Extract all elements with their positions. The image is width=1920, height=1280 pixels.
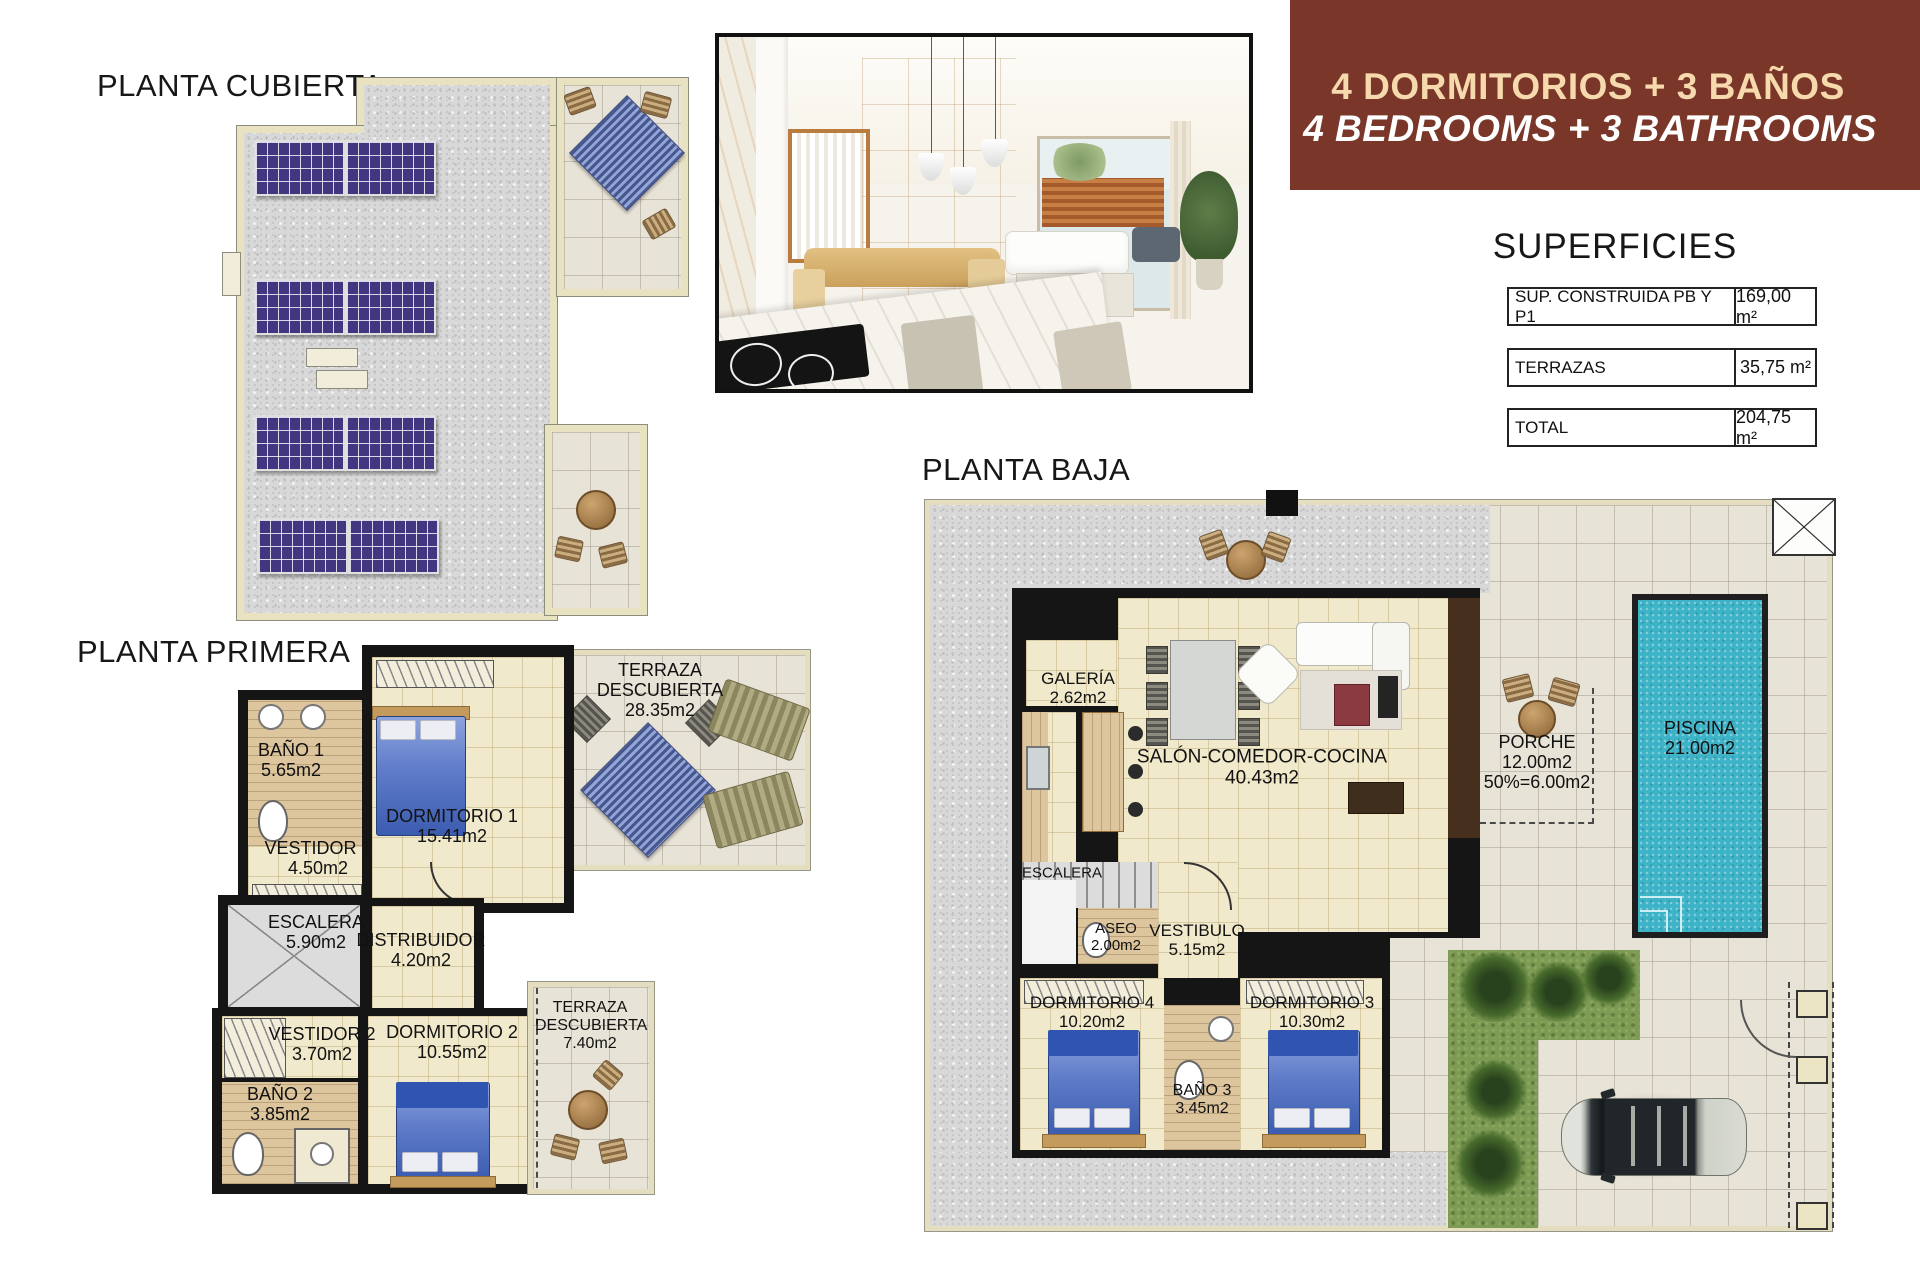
pillow <box>420 720 456 740</box>
duvet <box>396 1082 488 1108</box>
stool-icon <box>1128 802 1143 817</box>
room-label-piscina: PISCINA21.00m2 <box>1645 718 1755 758</box>
pillow <box>1274 1108 1310 1128</box>
room-label-escalera-baja: ESCALERA <box>1007 866 1117 883</box>
solar-panel <box>257 518 348 574</box>
photo-outdoor-greenery <box>1048 143 1112 182</box>
superficies-row-value: 169,00 m² <box>1736 289 1815 324</box>
chair-icon <box>1146 718 1168 746</box>
superficies-row: SUP. CONSTRUIDA PB Y P1 169,00 m² <box>1507 287 1817 326</box>
sink-icon <box>300 704 326 730</box>
crossed-box-icon <box>1772 498 1836 556</box>
pillow <box>1054 1108 1090 1128</box>
stair-landing <box>1022 880 1076 964</box>
superficies-title: SUPERFICIES <box>1455 227 1775 267</box>
table-icon <box>568 1090 608 1130</box>
room-label-porche: PORCHE12.00m250%=6.00m2 <box>1467 732 1607 792</box>
room-label-dormitorio3: DORMITORIO 310.30m2 <box>1237 993 1387 1031</box>
toilet-icon <box>232 1132 264 1176</box>
photo-stool <box>1053 321 1132 393</box>
wardrobe-icon <box>376 660 494 688</box>
bed-headboard <box>1042 1134 1146 1148</box>
superficies-row-value: 204,75 m² <box>1736 410 1815 445</box>
bed-headboard <box>1262 1134 1366 1148</box>
gravel-left <box>930 505 1018 1226</box>
chair-icon <box>1146 682 1168 710</box>
room-label-dormitorio4: DORMITORIO 410.20m2 <box>1017 993 1167 1031</box>
roof-left-bump <box>222 252 241 296</box>
pillow <box>402 1152 438 1172</box>
chair-icon <box>1146 646 1168 674</box>
car-roof-rail <box>1657 1106 1661 1166</box>
kitchen-island <box>1082 712 1124 832</box>
solar-panel <box>254 140 345 196</box>
chimney-block <box>1266 490 1298 516</box>
kitchen-sink-icon <box>1026 746 1050 790</box>
pillow <box>1314 1108 1350 1128</box>
car-body <box>1561 1098 1747 1176</box>
solar-panel <box>345 279 436 335</box>
room-label-vestidor1: VESTIDOR 14.50m2 <box>253 838 383 878</box>
room-label-terraza1: TERRAZA DESCUBIERTA28.35m2 <box>590 660 730 720</box>
photo-sofa <box>1005 231 1129 275</box>
solar-panel <box>254 279 345 335</box>
car-roof-rail <box>1631 1106 1635 1166</box>
solar-panel <box>345 415 436 471</box>
room-label-vestidor2: VESTIDOR 23.70m2 <box>257 1024 387 1064</box>
solar-panel <box>348 518 439 574</box>
pergola-beam <box>1448 598 1480 838</box>
palm-bush-icon <box>1454 1130 1526 1198</box>
pillow <box>442 1152 478 1172</box>
room-label-distribuidor: DISTRIBUIDOR4.20m2 <box>351 930 491 970</box>
headline-banner: 4 DORMITORIOS + 3 BAÑOS 4 BEDROOMS + 3 B… <box>1290 0 1920 190</box>
interior-photo <box>715 33 1253 393</box>
room-label-bano3: BAÑO 33.45m2 <box>1157 1082 1247 1118</box>
car-roof-rail <box>1683 1106 1687 1166</box>
table-icon <box>576 490 616 530</box>
photo-plant <box>1180 171 1238 263</box>
planta-baja-title: PLANTA BAJA <box>922 452 1130 488</box>
stool-icon <box>1128 726 1143 741</box>
room-label-salon: SALÓN-COMEDOR-COCINA40.43m2 <box>1132 747 1392 790</box>
room-label-dormitorio2: DORMITORIO 210.55m2 <box>377 1022 527 1062</box>
room-label-dormitorio1: DORMITORIO 115.41m2 <box>377 806 527 846</box>
room-label-vestibulo: VESTIBULO5.15m2 <box>1142 921 1252 959</box>
duvet <box>1048 1030 1138 1056</box>
room-label-galeria: GALERÍA2.62m2 <box>1028 669 1128 707</box>
toilet-icon <box>258 800 288 842</box>
piscina-pool <box>1632 594 1768 938</box>
pendant-cord <box>995 37 996 143</box>
planta-cubierta-title: PLANTA CUBIERTA <box>97 68 384 104</box>
planta-primera-title: PLANTA PRIMERA <box>77 634 350 670</box>
photo-dark-chair <box>1132 227 1180 262</box>
room-label-terraza2: TERRAZA DESCUBIERTA7.40m2 <box>535 999 645 1053</box>
solar-panel <box>345 140 436 196</box>
pendant-cord <box>931 37 932 157</box>
coffee-table-icon <box>1334 684 1370 726</box>
superficies-row-label: SUP. CONSTRUIDA PB Y P1 <box>1509 289 1736 324</box>
pillow <box>380 720 416 740</box>
superficies-row: TOTAL 204,75 m² <box>1507 408 1817 447</box>
superficies-row-value: 35,75 m² <box>1736 350 1815 385</box>
palm-bush-icon <box>1462 1060 1528 1122</box>
side-table-icon <box>1378 676 1398 718</box>
photo-window <box>788 129 870 264</box>
gate-post <box>1796 1202 1828 1230</box>
gate-post <box>1796 990 1828 1018</box>
roof-ac-unit <box>306 348 358 367</box>
solar-panel <box>254 415 345 471</box>
photo-stool <box>900 314 983 393</box>
brochure-page: PLANTA CUBIERTA <box>0 0 1920 1280</box>
room-label-bano1: BAÑO 15.65m2 <box>236 740 346 780</box>
duvet <box>1268 1030 1358 1056</box>
car-icon <box>1553 1086 1753 1186</box>
superficies-row-label: TOTAL <box>1509 410 1736 445</box>
table-icon <box>1226 540 1266 580</box>
palm-bush-icon <box>1580 950 1638 1006</box>
photo-wood-fence <box>1042 178 1164 227</box>
superficies-row: TERRAZAS 35,75 m² <box>1507 348 1817 387</box>
palm-bush-icon <box>1456 952 1534 1022</box>
porche-boundary <box>1480 822 1594 824</box>
dining-table-icon <box>1170 640 1236 740</box>
pendant-cord <box>963 37 964 171</box>
chair-icon <box>1238 718 1260 746</box>
pool-steps-icon <box>1640 910 1668 932</box>
banner-line-es: 4 DORMITORIOS + 3 BAÑOS <box>1290 66 1886 108</box>
sink-icon <box>1208 1016 1234 1042</box>
gravel-bottom <box>930 1152 1446 1226</box>
room-label-bano2: BAÑO 23.85m2 <box>230 1084 330 1124</box>
roof-ac-unit <box>316 370 368 389</box>
gate-post <box>1796 1056 1828 1084</box>
pillow <box>1094 1108 1130 1128</box>
banner-line-en: 4 BEDROOMS + 3 BATHROOMS <box>1290 108 1890 150</box>
superficies-row-label: TERRAZAS <box>1509 350 1736 385</box>
bed-headboard <box>390 1176 496 1188</box>
drain-icon <box>310 1142 334 1166</box>
photo-plant-pot <box>1196 259 1223 291</box>
sink-icon <box>258 704 284 730</box>
